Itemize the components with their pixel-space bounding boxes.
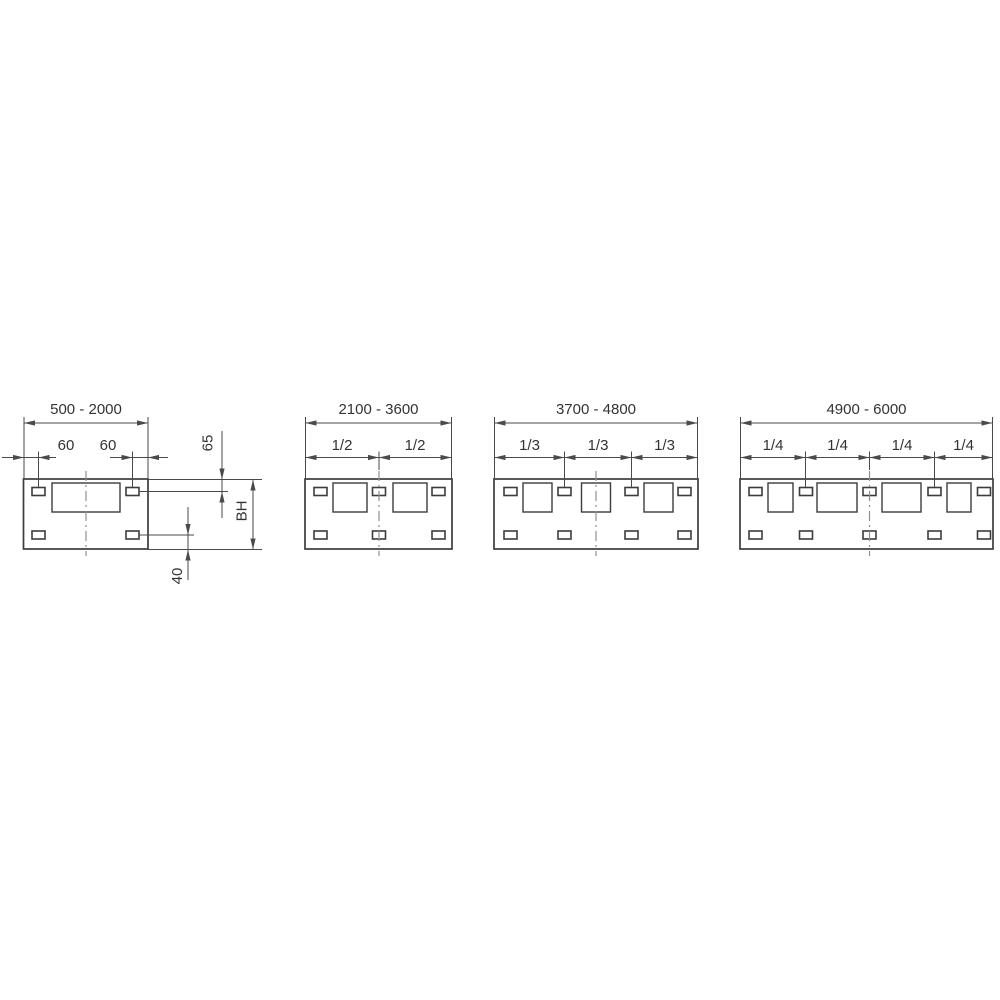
- mounting-slot: [978, 531, 991, 539]
- dimension-label: 1/4: [763, 437, 784, 454]
- window-cutout: [644, 483, 673, 512]
- dimension-label: 1/4: [953, 437, 974, 454]
- dimension-label: 1/2: [405, 437, 426, 454]
- dimension-label: 4900 - 6000: [826, 401, 906, 418]
- panel-3-diagram: 3700 - 4800 1/3 1/3 1/3: [494, 401, 698, 556]
- mounting-slot: [978, 488, 991, 496]
- dimension-label: BH: [234, 501, 251, 522]
- mounting-slot: [928, 531, 941, 539]
- dimension-label: 1/3: [519, 437, 540, 454]
- dimension-label: 60: [58, 437, 75, 454]
- mounting-slot: [800, 488, 813, 496]
- mounting-slot: [126, 531, 139, 539]
- mounting-slot: [928, 488, 941, 496]
- window-cutout: [882, 483, 921, 512]
- mounting-slot: [32, 488, 45, 496]
- mounting-slot: [625, 488, 638, 496]
- dimension-label: 1/4: [892, 437, 913, 454]
- mounting-slot: [749, 531, 762, 539]
- mounting-slot: [432, 488, 445, 496]
- dimension-label: 1/3: [654, 437, 675, 454]
- mounting-slot: [749, 488, 762, 496]
- panel-2-diagram: 2100 - 3600 1/2 1/2: [305, 401, 452, 556]
- mounting-slot: [432, 531, 445, 539]
- mounting-slot: [504, 531, 517, 539]
- dimension-label: 1/4: [827, 437, 848, 454]
- panel-4-diagram: 4900 - 6000 1/4 1/4 1/4 1/4: [740, 401, 993, 556]
- window-cutout: [768, 483, 793, 512]
- mounting-slot: [678, 488, 691, 496]
- window-cutout: [393, 483, 427, 512]
- dimension-label: 1/3: [588, 437, 609, 454]
- window-cutout: [333, 483, 367, 512]
- technical-drawing-page: 500 - 2000 60 60 65 BH 40: [0, 0, 1000, 1000]
- dimension-label: 500 - 2000: [50, 401, 122, 418]
- mounting-slot: [558, 488, 571, 496]
- dimension-label: 1/2: [332, 437, 353, 454]
- mounting-slot: [504, 488, 517, 496]
- dimension-label: 3700 - 4800: [556, 401, 636, 418]
- mounting-slot: [678, 531, 691, 539]
- panel-1-diagram: 500 - 2000 60 60 65 BH 40: [2, 401, 262, 584]
- mounting-slot: [558, 531, 571, 539]
- window-cutout: [817, 483, 857, 512]
- dimension-label: 65: [200, 435, 217, 452]
- mounting-slot: [800, 531, 813, 539]
- dimension-label: 60: [100, 437, 117, 454]
- door-panel-dimension-drawing: 500 - 2000 60 60 65 BH 40: [0, 0, 1000, 1000]
- mounting-slot: [625, 531, 638, 539]
- mounting-slot: [126, 488, 139, 496]
- dimension-label: 2100 - 3600: [338, 401, 418, 418]
- mounting-slot: [314, 488, 327, 496]
- mounting-slot: [314, 531, 327, 539]
- window-cutout: [523, 483, 552, 512]
- mounting-slot: [32, 531, 45, 539]
- dimension-label: 40: [169, 568, 186, 585]
- window-cutout: [947, 483, 971, 512]
